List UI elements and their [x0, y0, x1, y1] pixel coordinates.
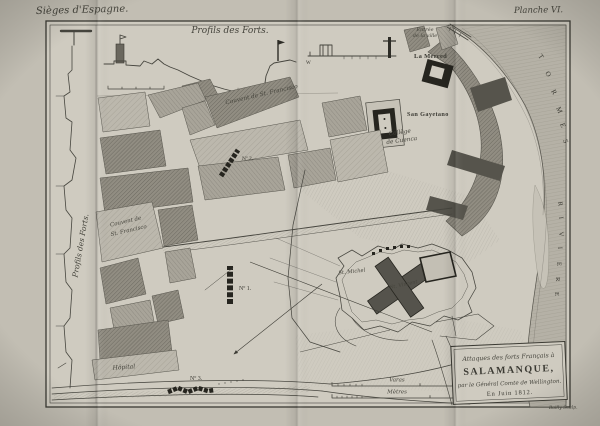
label-battery-3: Nº 3. — [190, 376, 203, 382]
label-battery-1: Nº 1. — [239, 286, 252, 292]
plate-label: Planche VI. — [513, 5, 563, 16]
riviere-letter: E — [555, 262, 562, 266]
label-entree-1: Entrée — [415, 26, 433, 33]
profile-ref-w: W — [306, 61, 311, 66]
engraver-credit: Bailly Sculp. — [548, 404, 578, 411]
battery-no3 — [168, 388, 214, 392]
riviere-letter: E — [553, 292, 560, 296]
scale-metres-label: Mètres — [386, 389, 407, 396]
engraved-map-sheet: Sièges d'Espagne. Planche VI. Profils de… — [0, 0, 600, 426]
title-cartouche: Attaques des forts Français à SALAMANQUE… — [451, 341, 567, 404]
label-la-merced: La Merced — [414, 53, 447, 60]
scale-varas-label: Varas — [389, 378, 405, 384]
top-profile-title: Profils des Forts. — [190, 26, 268, 36]
label-battery-2: Nº 2. — [242, 156, 254, 162]
label-san-cayetano: San Gayetano — [407, 111, 449, 118]
label-entree-2: de la ville — [413, 33, 438, 39]
riviere-letter: R — [554, 277, 561, 282]
